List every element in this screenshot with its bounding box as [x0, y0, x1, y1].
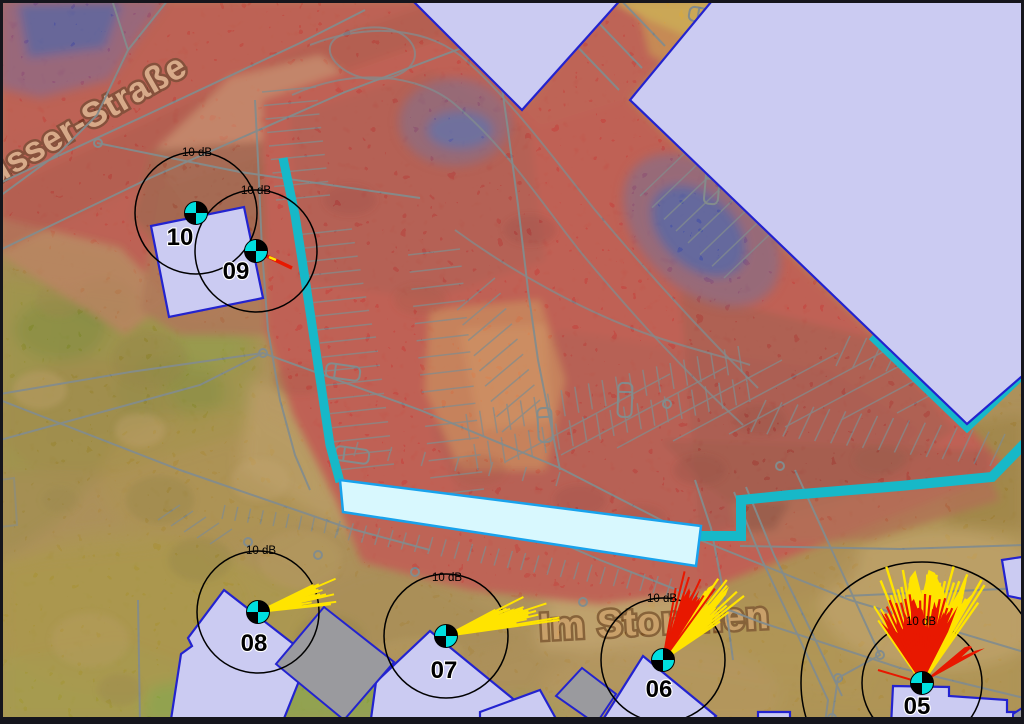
svg-text:10 dB: 10 dB: [246, 545, 276, 557]
svg-text:10 dB: 10 dB: [432, 572, 462, 584]
svg-text:05: 05: [904, 693, 931, 720]
svg-text:09: 09: [223, 258, 250, 285]
svg-text:10 dB: 10 dB: [182, 147, 212, 159]
svg-text:07: 07: [431, 657, 458, 684]
svg-text:06: 06: [646, 676, 673, 703]
svg-text:10 dB: 10 dB: [647, 593, 677, 605]
svg-text:10 dB: 10 dB: [906, 616, 936, 628]
svg-text:08: 08: [241, 630, 268, 657]
svg-text:10 dB: 10 dB: [241, 185, 271, 197]
svg-text:10: 10: [167, 224, 194, 251]
